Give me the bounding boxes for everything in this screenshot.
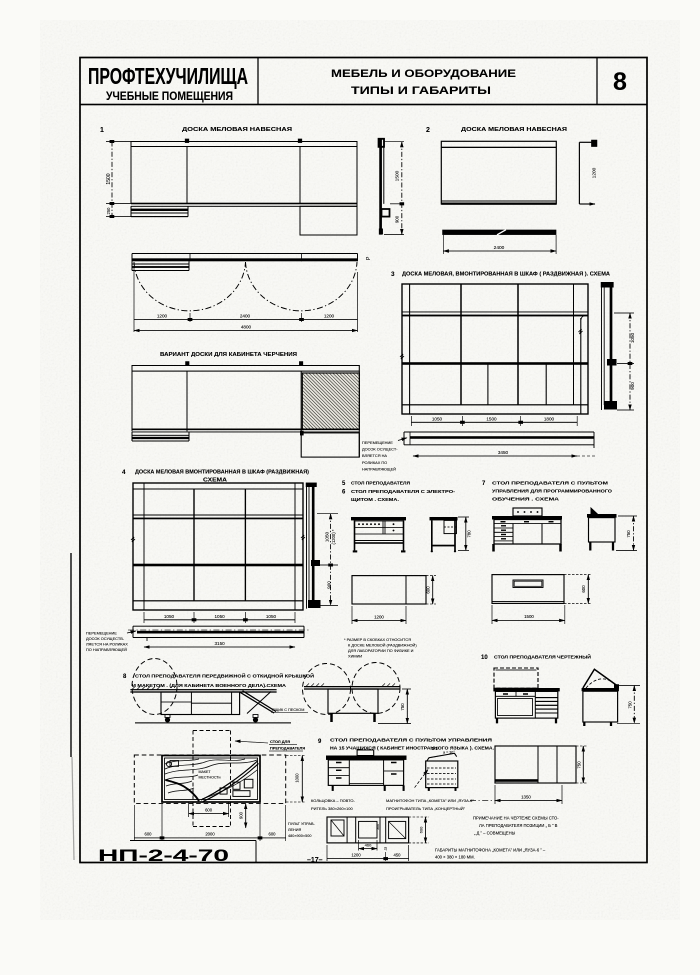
svg-text:ГАБАРИТЫ МАГНИТОФОНА „КОМЕТА”: ГАБАРИТЫ МАГНИТОФОНА „КОМЕТА” ИЛИ „ЯУЗА-… xyxy=(435,848,546,853)
svg-text:3: 3 xyxy=(391,271,395,278)
svg-text:1050: 1050 xyxy=(214,614,225,619)
svg-text:3150: 3150 xyxy=(214,641,225,646)
svg-text:ВЛЯЕТСЯ НА: ВЛЯЕТСЯ НА xyxy=(362,453,387,458)
svg-text:ЩИТОМ . СХЕМА.: ЩИТОМ . СХЕМА. xyxy=(351,497,399,502)
svg-text:ПРИМЕЧАНИЕ НА ЧЕРТЕЖЕ СХ: ПРИМЕЧАНИЕ НА ЧЕРТЕЖЕ СХЕМЫ СТО- xyxy=(473,816,559,821)
svg-text:ДЛЯ ЛАБОРАТОРИИ ПО ФИЗИКЕ И: ДЛЯ ЛАБОРАТОРИИ ПО ФИЗИКЕ И xyxy=(348,648,414,653)
svg-text:4: 4 xyxy=(122,469,126,476)
svg-text:1050: 1050 xyxy=(325,531,330,542)
svg-text:К ДОСКЕ МЕЛОВОЙ (РАЗДВИЖНОЙ): К ДОСКЕ МЕЛОВОЙ (РАЗДВИЖНОЙ) xyxy=(348,643,417,648)
svg-text:ЛА ПРЕПОДАВАТЕЛЯ ПОЗИЦИИ: ЛА ПРЕПОДАВАТЕЛЯ ПОЗИЦИИ „ Б ” В xyxy=(479,823,558,828)
svg-text:СТОЛ ПРЕПОДАВАТЕЛЯ ПЕРЕДВИЖН: СТОЛ ПРЕПОДАВАТЕЛЯ ПЕРЕДВИЖНОЙ С ОТКИДНО… xyxy=(135,674,314,679)
svg-text:УЧЕБНЫЕ ПОМЕЩЕНИЯ: УЧЕБНЫЕ ПОМЕЩЕНИЯ xyxy=(106,89,233,103)
svg-text:10: 10 xyxy=(481,655,488,661)
svg-text:ДОСКА МЕЛОВАЯ НАВЕСНАЯ: ДОСКА МЕЛОВАЯ НАВЕСНАЯ xyxy=(461,127,567,133)
svg-text:УПРАВЛЕНИЯ ДЛЯ ПРОГРАММИРОВА: УПРАВЛЕНИЯ ДЛЯ ПРОГРАММИРОВАННОГО xyxy=(492,489,613,494)
svg-text:ТИПЫ И ГАБАРИТЫ: ТИПЫ И ГАБАРИТЫ xyxy=(351,85,491,97)
svg-text:1050: 1050 xyxy=(630,332,635,343)
svg-text:–17–: –17– xyxy=(307,857,323,864)
svg-text:2000: 2000 xyxy=(205,832,215,837)
svg-text:600: 600 xyxy=(269,832,277,837)
svg-text:1000: 1000 xyxy=(294,773,299,783)
svg-text:ЛЯЕТСЯ НА РОЛИКАХ: ЛЯЕТСЯ НА РОЛИКАХ xyxy=(86,642,128,647)
svg-text:1: 1 xyxy=(100,127,104,134)
svg-text:600: 600 xyxy=(205,807,213,812)
svg-text:ЯЩИК С ПЕСКОМ: ЯЩИК С ПЕСКОМ xyxy=(272,708,304,712)
svg-text:750: 750 xyxy=(626,530,631,538)
svg-text:СТОЛ ПРЕПОДАВАТЕЛЯ С ЭЛЕКТР: СТОЛ ПРЕПОДАВАТЕЛЯ С ЭЛЕКТРО- xyxy=(351,489,456,494)
svg-text:750: 750 xyxy=(576,761,581,769)
svg-text:600: 600 xyxy=(581,585,586,593)
svg-text:1200: 1200 xyxy=(592,167,598,178)
svg-text:1500: 1500 xyxy=(395,170,401,181)
svg-text:900: 900 xyxy=(395,215,400,223)
svg-text:„ Д ” – СОВМЕЩЕНЫ: „ Д ” – СОВМЕЩЕНЫ xyxy=(474,831,516,836)
svg-text:ПРОФТЕХУЧИЛИЩА: ПРОФТЕХУЧИЛИЩА xyxy=(88,63,248,89)
svg-text:2|: 2| xyxy=(384,846,387,851)
svg-text:8: 8 xyxy=(613,68,627,96)
svg-text:НП-2-4-70: НП-2-4-70 xyxy=(98,847,229,865)
svg-text:2: 2 xyxy=(426,127,430,134)
svg-text:1-1: 1-1 xyxy=(432,746,439,751)
svg-text:2400: 2400 xyxy=(240,314,251,319)
svg-text:РОЛИКАХ ПО: РОЛИКАХ ПО xyxy=(362,460,387,465)
svg-text:СТОЛ ПРЕПОДАВАТЕЛЯ С ПУЛЬТО: СТОЛ ПРЕПОДАВАТЕЛЯ С ПУЛЬТОМ xyxy=(492,481,609,486)
svg-text:МАКЕТ: МАКЕТ xyxy=(199,770,212,774)
svg-text:МАГНИТОФОН ТИПА „КОМЕТА” ИЛИ „: МАГНИТОФОН ТИПА „КОМЕТА” ИЛИ „ЯУЗА-6” xyxy=(386,798,474,803)
svg-text:900: 900 xyxy=(630,382,635,390)
svg-text:ПРЕПОДАВАТЕЛЯ: ПРЕПОДАВАТЕЛЯ xyxy=(270,746,305,751)
svg-text:ОБУЧЕНИЯ . СХЕМА: ОБУЧЕНИЯ . СХЕМА xyxy=(492,497,559,502)
svg-text:КОЛЬЦОВКА – ПОВТО-: КОЛЬЦОВКА – ПОВТО- xyxy=(311,798,355,803)
svg-text:300: 300 xyxy=(376,824,380,830)
svg-text:600: 600 xyxy=(426,586,431,594)
svg-text:400 × 380 × 180 ММ.: 400 × 380 × 180 ММ. xyxy=(435,855,475,860)
svg-text:ПРОИГРЫВАТЕЛЬ ТИПА „КОНЦЕРТНЫ: ПРОИГРЫВАТЕЛЬ ТИПА „КОНЦЕРТНЫЙ” xyxy=(386,806,466,811)
svg-text:ПУЛЬТ УПРАВ-: ПУЛЬТ УПРАВ- xyxy=(288,822,315,826)
svg-text:2400: 2400 xyxy=(494,245,505,251)
svg-text:750: 750 xyxy=(400,703,405,711)
svg-text:ХИМИИ: ХИМИИ xyxy=(348,654,362,659)
svg-text:МЕБЕЛЬ И ОБОРУДОВАНИЕ: МЕБЕЛЬ И ОБОРУДОВАНИЕ xyxy=(331,68,516,80)
svg-text:ДОСКА МЕЛОВАЯ ВМОНТИРОВАННА: ДОСКА МЕЛОВАЯ ВМОНТИРОВАННАЯ В ШКАФ (РАЗ… xyxy=(135,470,309,476)
svg-text:1200: 1200 xyxy=(351,852,361,857)
svg-text:И МАКЕТОМ . (ДЛЯ КАБИНЕТА ВОЕН: И МАКЕТОМ . (ДЛЯ КАБИНЕТА ВОЕННОГО ДЕЛА)… xyxy=(132,683,286,688)
svg-text:1800: 1800 xyxy=(544,417,555,422)
svg-text:3450: 3450 xyxy=(498,450,509,455)
svg-text:ДОСКА МЕЛОВАЯ НАВЕСНАЯ: ДОСКА МЕЛОВАЯ НАВЕСНАЯ xyxy=(182,127,292,133)
svg-text:480×900×500: 480×900×500 xyxy=(288,834,311,838)
svg-text:1500: 1500 xyxy=(106,173,112,184)
svg-text:900: 900 xyxy=(239,811,244,819)
svg-text:ПО НАПРАВЛЯЮЩЕЙ: ПО НАПРАВЛЯЮЩЕЙ xyxy=(86,647,127,652)
svg-text:ПЕРЕМЕЩЕНИЕ: ПЕРЕМЕЩЕНИЕ xyxy=(362,440,393,445)
svg-text:ДОСКА МЕЛОВАЯ, ВМОНТИРОВАННАЯ: ДОСКА МЕЛОВАЯ, ВМОНТИРОВАННАЯ В ШКАФ ( Р… xyxy=(402,272,610,278)
svg-text:1050: 1050 xyxy=(164,614,175,619)
svg-text:780: 780 xyxy=(467,530,472,538)
svg-text:1500: 1500 xyxy=(524,614,534,619)
svg-text:460: 460 xyxy=(365,843,372,848)
svg-text:СТОЛ ДЛЯ: СТОЛ ДЛЯ xyxy=(270,739,290,744)
svg-text:(1200) *: (1200) * xyxy=(331,529,336,544)
svg-text:4800: 4800 xyxy=(241,325,252,330)
svg-text:СТОЛ ПРЕПОДАВАТЕЛЯ ЧЕРТЕЖНЫЙ: СТОЛ ПРЕПОДАВАТЕЛЯ ЧЕРТЕЖНЫЙ xyxy=(494,655,591,660)
svg-text:МЕСТНОСТи: МЕСТНОСТи xyxy=(199,776,221,780)
svg-text:ДОСОК ОСУЩЕСТ-: ДОСОК ОСУЩЕСТ- xyxy=(362,447,398,452)
svg-text:* РАЗМЕР В СКОБКАХ ОТНОСИТСЯ: * РАЗМЕР В СКОБКАХ ОТНОСИТСЯ xyxy=(344,637,411,642)
svg-text:450: 450 xyxy=(394,852,402,857)
svg-text:1050: 1050 xyxy=(266,614,277,619)
svg-text:1500: 1500 xyxy=(486,417,497,422)
svg-text:ЛЕНИЯ: ЛЕНИЯ xyxy=(288,828,301,832)
svg-text:600: 600 xyxy=(145,832,153,837)
svg-text:750: 750 xyxy=(627,701,632,709)
svg-text:1050: 1050 xyxy=(432,417,443,422)
svg-text:СТОЛ ПРЕПОДАВАТЕЛЯ: СТОЛ ПРЕПОДАВАТЕЛЯ xyxy=(351,481,410,486)
svg-text:1200: 1200 xyxy=(157,314,168,319)
svg-text:СТОЛ ПРЕПОДАВАТЕЛЯ С ПУЛЬТО: СТОЛ ПРЕПОДАВАТЕЛЯ С ПУЛЬТОМ УПРАВЛЕНИЯ xyxy=(330,738,492,743)
svg-text:ПЕРЕМЕЩЕНИЕ: ПЕРЕМЕЩЕНИЕ xyxy=(86,631,117,636)
svg-text:900: 900 xyxy=(327,581,332,589)
svg-text:ВАРИАНТ ДОСКИ ДЛЯ КАБИНЕТА: ВАРИАНТ ДОСКИ ДЛЯ КАБИНЕТА ЧЕРЧЕНИЯ xyxy=(160,352,297,358)
svg-text:НАПРАВЛЯЮЩЕЙ: НАПРАВЛЯЮЩЕЙ xyxy=(362,466,396,471)
svg-text:1200: 1200 xyxy=(324,314,335,319)
svg-text:ДОСОК ОСУЩЕСТВ-: ДОСОК ОСУЩЕСТВ- xyxy=(86,636,125,641)
svg-text:250: 250 xyxy=(106,207,111,215)
svg-text:НА 15 УЧАЩИХСЯ ( КАБИНЕТ ИНОС: НА 15 УЧАЩИХСЯ ( КАБИНЕТ ИНОСТРАННОГО ЯЗ… xyxy=(330,746,494,751)
svg-text:1350: 1350 xyxy=(521,794,531,799)
svg-text:РИТЕЛЬ 380×260×100: РИТЕЛЬ 380×260×100 xyxy=(311,806,353,811)
svg-text:1200: 1200 xyxy=(374,614,384,619)
svg-text:600: 600 xyxy=(419,826,424,833)
